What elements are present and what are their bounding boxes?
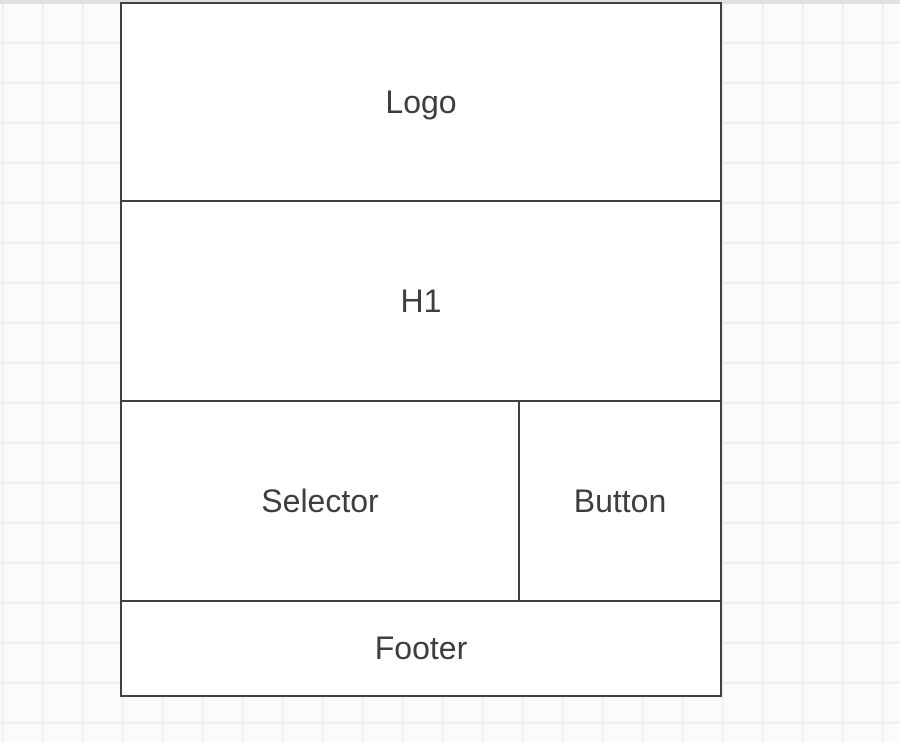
shape-selector-label: Selector — [261, 483, 378, 520]
shape-footer[interactable]: Footer — [122, 602, 720, 695]
diagram-canvas[interactable]: Logo H1 Selector Button Footer — [0, 0, 900, 742]
shape-selector[interactable]: Selector — [122, 402, 520, 600]
shape-h1[interactable]: H1 — [122, 202, 720, 402]
shape-h1-label: H1 — [401, 283, 442, 320]
selector-button-row: Selector Button — [122, 402, 720, 602]
shape-footer-label: Footer — [375, 630, 467, 667]
shape-button-label: Button — [574, 483, 667, 520]
shape-button[interactable]: Button — [520, 402, 720, 600]
wireframe-container[interactable]: Logo H1 Selector Button Footer — [120, 2, 722, 697]
shape-logo[interactable]: Logo — [122, 4, 720, 202]
shape-logo-label: Logo — [385, 84, 456, 121]
